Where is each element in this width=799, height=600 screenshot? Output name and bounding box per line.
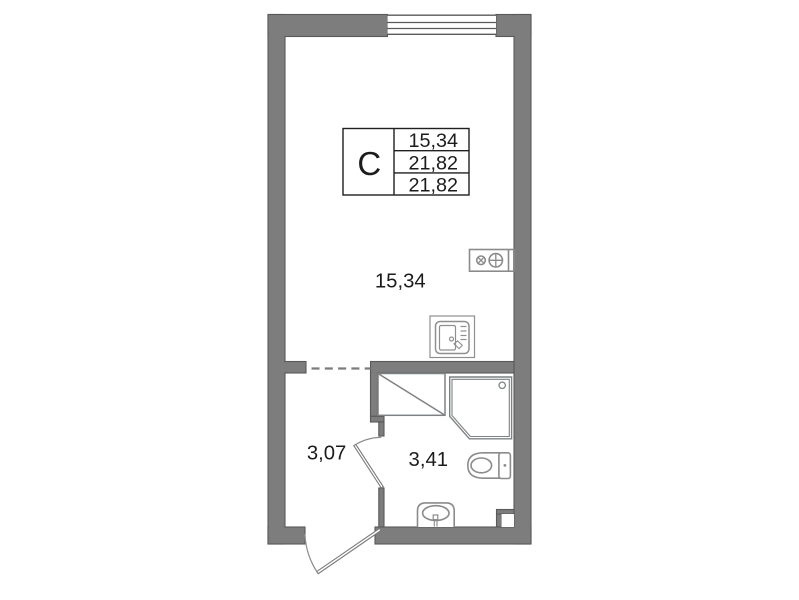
svg-text:21,82: 21,82	[408, 152, 458, 174]
svg-text:C: C	[357, 145, 381, 182]
svg-text:3,41: 3,41	[409, 449, 448, 471]
svg-text:15,34: 15,34	[375, 271, 426, 293]
svg-text:21,82: 21,82	[408, 174, 458, 196]
svg-text:3,07: 3,07	[307, 443, 346, 465]
svg-text:15,34: 15,34	[408, 130, 458, 152]
